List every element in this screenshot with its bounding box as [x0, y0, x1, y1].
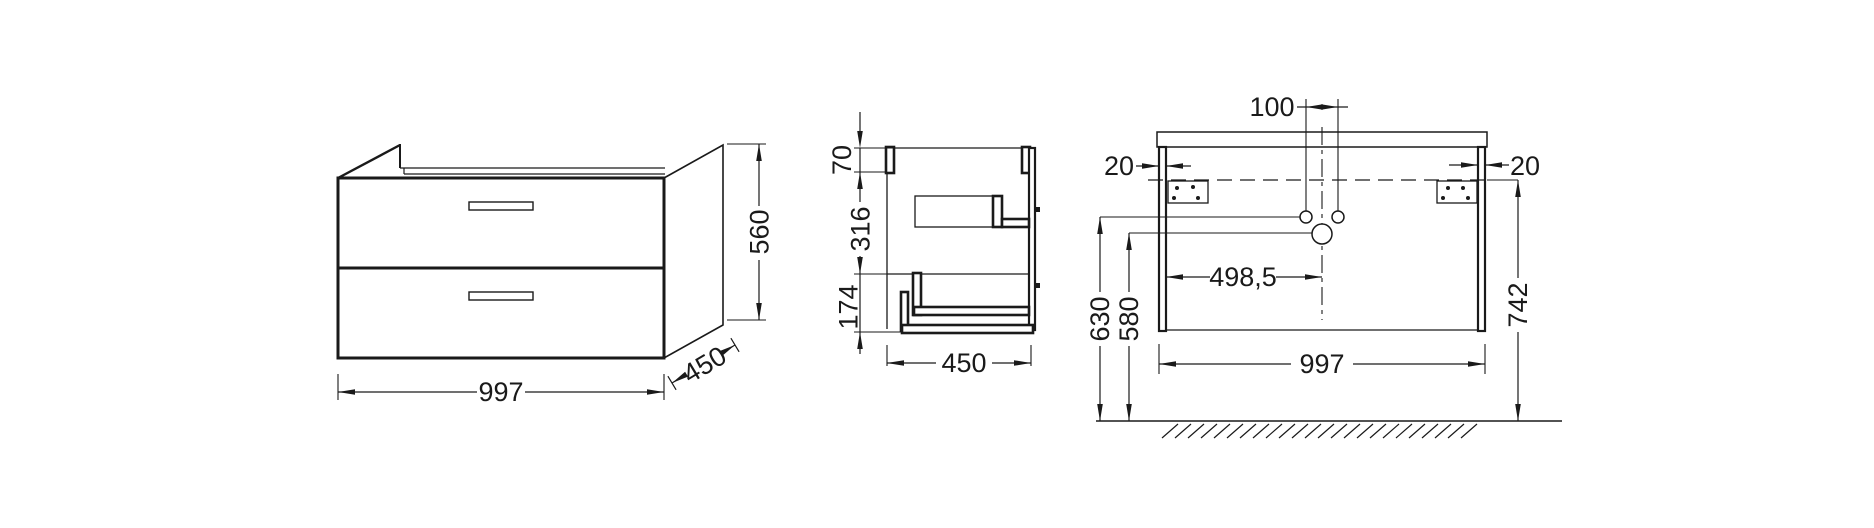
- arrowhead-bottom: [1515, 404, 1521, 421]
- front-width-dimension: 997: [338, 374, 664, 407]
- arrowhead-left: [1306, 104, 1323, 110]
- arrowhead-top: [756, 144, 762, 161]
- screw-hole: [1191, 185, 1195, 189]
- side-panel-right: [1478, 147, 1485, 331]
- panel-thickness-label-right: 20: [1510, 151, 1540, 181]
- arrowhead-left: [1166, 274, 1183, 280]
- arrowhead-bottom: [756, 303, 762, 320]
- arrowhead-right: [647, 389, 664, 395]
- arrowhead-top: [1126, 233, 1132, 250]
- side-depth-dimension: 450: [887, 345, 1031, 378]
- arrowhead-right: [1321, 104, 1338, 110]
- drain-offset-label: 498,5: [1209, 262, 1277, 292]
- tap-fixing-hole-right: [1332, 211, 1344, 223]
- arrowhead-top: [1515, 180, 1521, 197]
- panel-thickness-dimension-right: 20: [1449, 151, 1540, 181]
- panel-thickness-dimension-left: 20: [1104, 151, 1191, 181]
- arrowhead-inner: [1461, 162, 1478, 168]
- floor-hatching: [1162, 424, 1477, 438]
- screw-hole: [1172, 196, 1176, 200]
- mounting-height-dimension: 742: [1487, 180, 1533, 421]
- wall-dowel-lower: [1035, 283, 1040, 288]
- side-height-chain-dimension: 70 316 174: [827, 112, 902, 354]
- front-height-dimension: 560: [727, 144, 775, 320]
- installation-view: 100 20 20 498,5 630: [1085, 92, 1562, 438]
- side-panel-right: [664, 145, 723, 358]
- front-perspective-view: 997 560 450: [338, 144, 775, 407]
- carcass-bottom-panel: [902, 325, 1033, 333]
- screw-hole: [1196, 196, 1200, 200]
- arrowhead-bottom: [1126, 404, 1132, 421]
- arrowhead-right: [1468, 361, 1485, 367]
- tap-spacing-label: 100: [1249, 92, 1294, 122]
- front-width-label: 997: [478, 377, 523, 407]
- drawer-handle-top: [469, 202, 533, 210]
- mounting-height-label: 742: [1503, 282, 1533, 327]
- screw-hole: [1466, 196, 1470, 200]
- front-top-rail-section: [886, 147, 894, 173]
- arrowhead-down-top: [857, 131, 863, 148]
- arrowhead-down-mid: [857, 257, 863, 274]
- front-height-label: 560: [745, 209, 775, 254]
- side-panel-left: [1159, 147, 1166, 331]
- arrowhead-bottom: [1097, 404, 1103, 421]
- upper-drawer-runner: [1002, 219, 1029, 227]
- arrowhead-outer: [1485, 162, 1502, 168]
- side-section-view: 70 316 174 450: [827, 112, 1040, 378]
- vanity-unit-drawing: 997 560 450: [0, 0, 1874, 528]
- install-width-label: 997: [1299, 349, 1344, 379]
- install-width-dimension: 997: [1159, 344, 1485, 379]
- wall-dowel-upper: [1035, 207, 1040, 212]
- arrowhead-left: [338, 389, 355, 395]
- screw-hole: [1461, 186, 1465, 190]
- back-panel-section: [1029, 148, 1035, 330]
- arrowhead-up-mid: [857, 172, 863, 189]
- back-rail-top-edge: [400, 168, 665, 174]
- screw-hole: [1175, 186, 1179, 190]
- arrowhead-right: [1014, 360, 1031, 366]
- side-panel-left-top-edge: [338, 145, 400, 178]
- tap-fixing-hole-left: [1300, 211, 1312, 223]
- upper-drawer-box: [915, 196, 993, 227]
- lower-drawer-bottom: [914, 307, 1029, 315]
- side-lower-section-label: 174: [834, 284, 864, 329]
- drawer-handle-bottom: [469, 292, 533, 300]
- side-depth-label: 450: [941, 348, 986, 378]
- technical-drawing-sheet: 997 560 450: [0, 0, 1874, 528]
- tap-height-label: 630: [1085, 296, 1115, 341]
- screw-hole: [1446, 186, 1450, 190]
- arrowhead-left: [1159, 361, 1176, 367]
- upper-drawer-back: [993, 196, 1002, 227]
- arrowhead-top: [1097, 217, 1103, 234]
- arrowhead-right: [1305, 274, 1322, 280]
- drain-hole: [1312, 224, 1332, 244]
- side-top-rail-label: 70: [827, 145, 857, 175]
- tap-spacing-dimension: 100: [1249, 92, 1348, 211]
- arrowhead-inner: [1166, 163, 1183, 169]
- arrowhead-left: [887, 360, 904, 366]
- drain-height-label: 580: [1114, 296, 1144, 341]
- arrowhead-up-bottom: [857, 332, 863, 349]
- screw-hole: [1441, 196, 1445, 200]
- drain-offset-dimension: 498,5: [1166, 262, 1322, 292]
- arrowhead-outer: [1142, 163, 1159, 169]
- panel-thickness-label-left: 20: [1104, 151, 1134, 181]
- side-upper-section-label: 316: [846, 206, 876, 251]
